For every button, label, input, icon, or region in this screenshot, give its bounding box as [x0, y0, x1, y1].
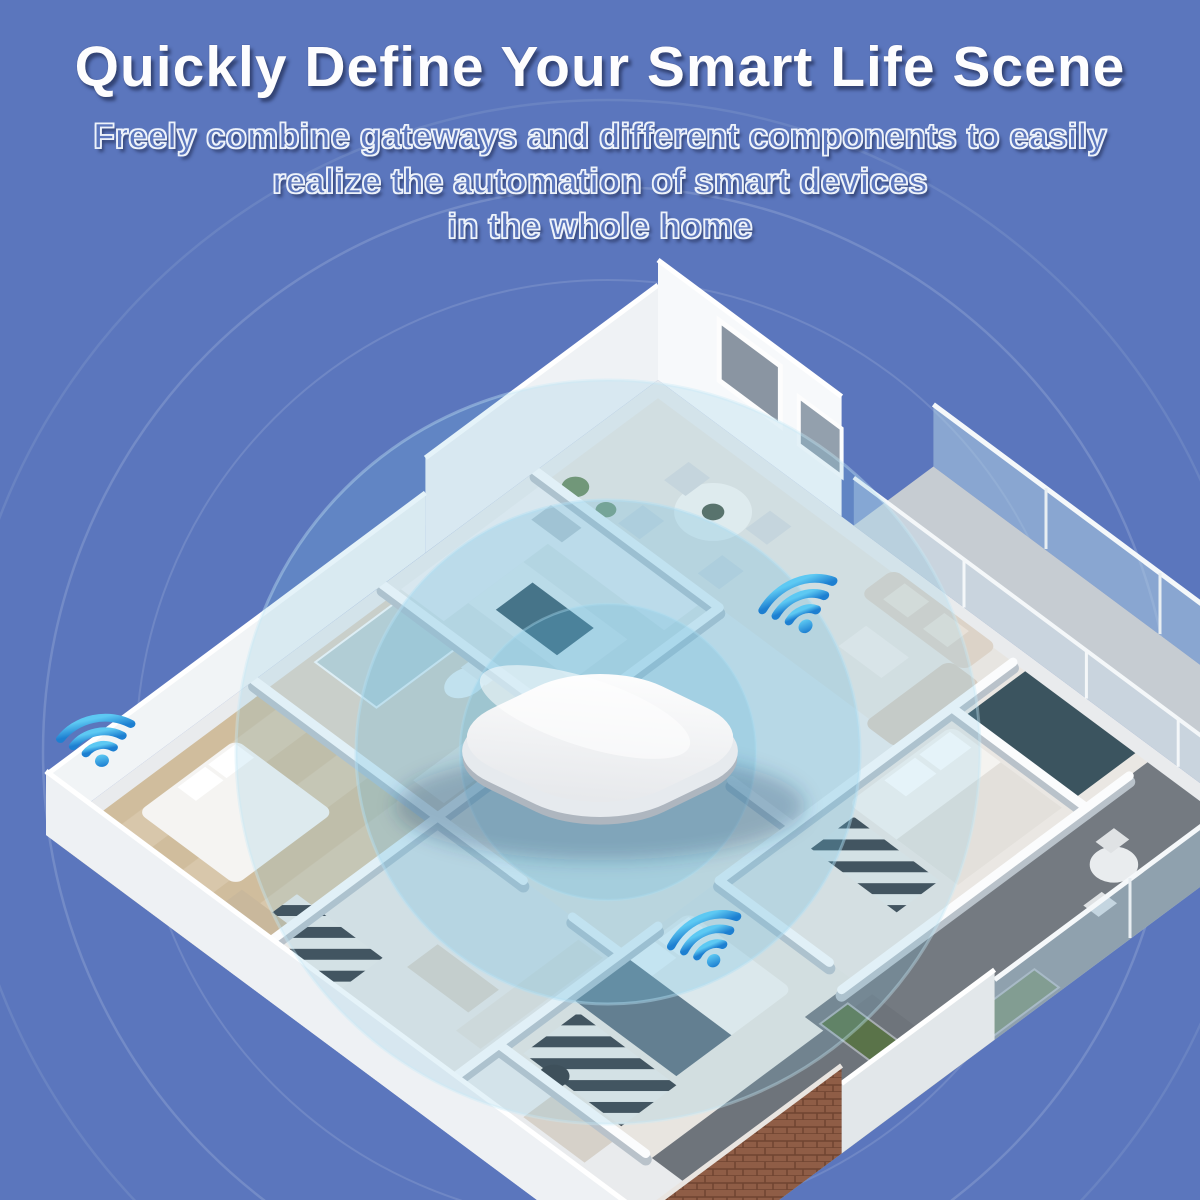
subtitle-line-3: in the whole home: [0, 204, 1200, 249]
subtitle-line-1: Freely combine gateways and different co…: [0, 114, 1200, 159]
poster: Quickly Define Your Smart Life Scene Fre…: [0, 0, 1200, 1200]
subtitle-line-2: realize the automation of smart devices: [0, 159, 1200, 204]
subtitle: Freely combine gateways and different co…: [0, 114, 1200, 249]
page-title: Quickly Define Your Smart Life Scene: [0, 34, 1200, 100]
header: Quickly Define Your Smart Life Scene Fre…: [0, 34, 1200, 249]
